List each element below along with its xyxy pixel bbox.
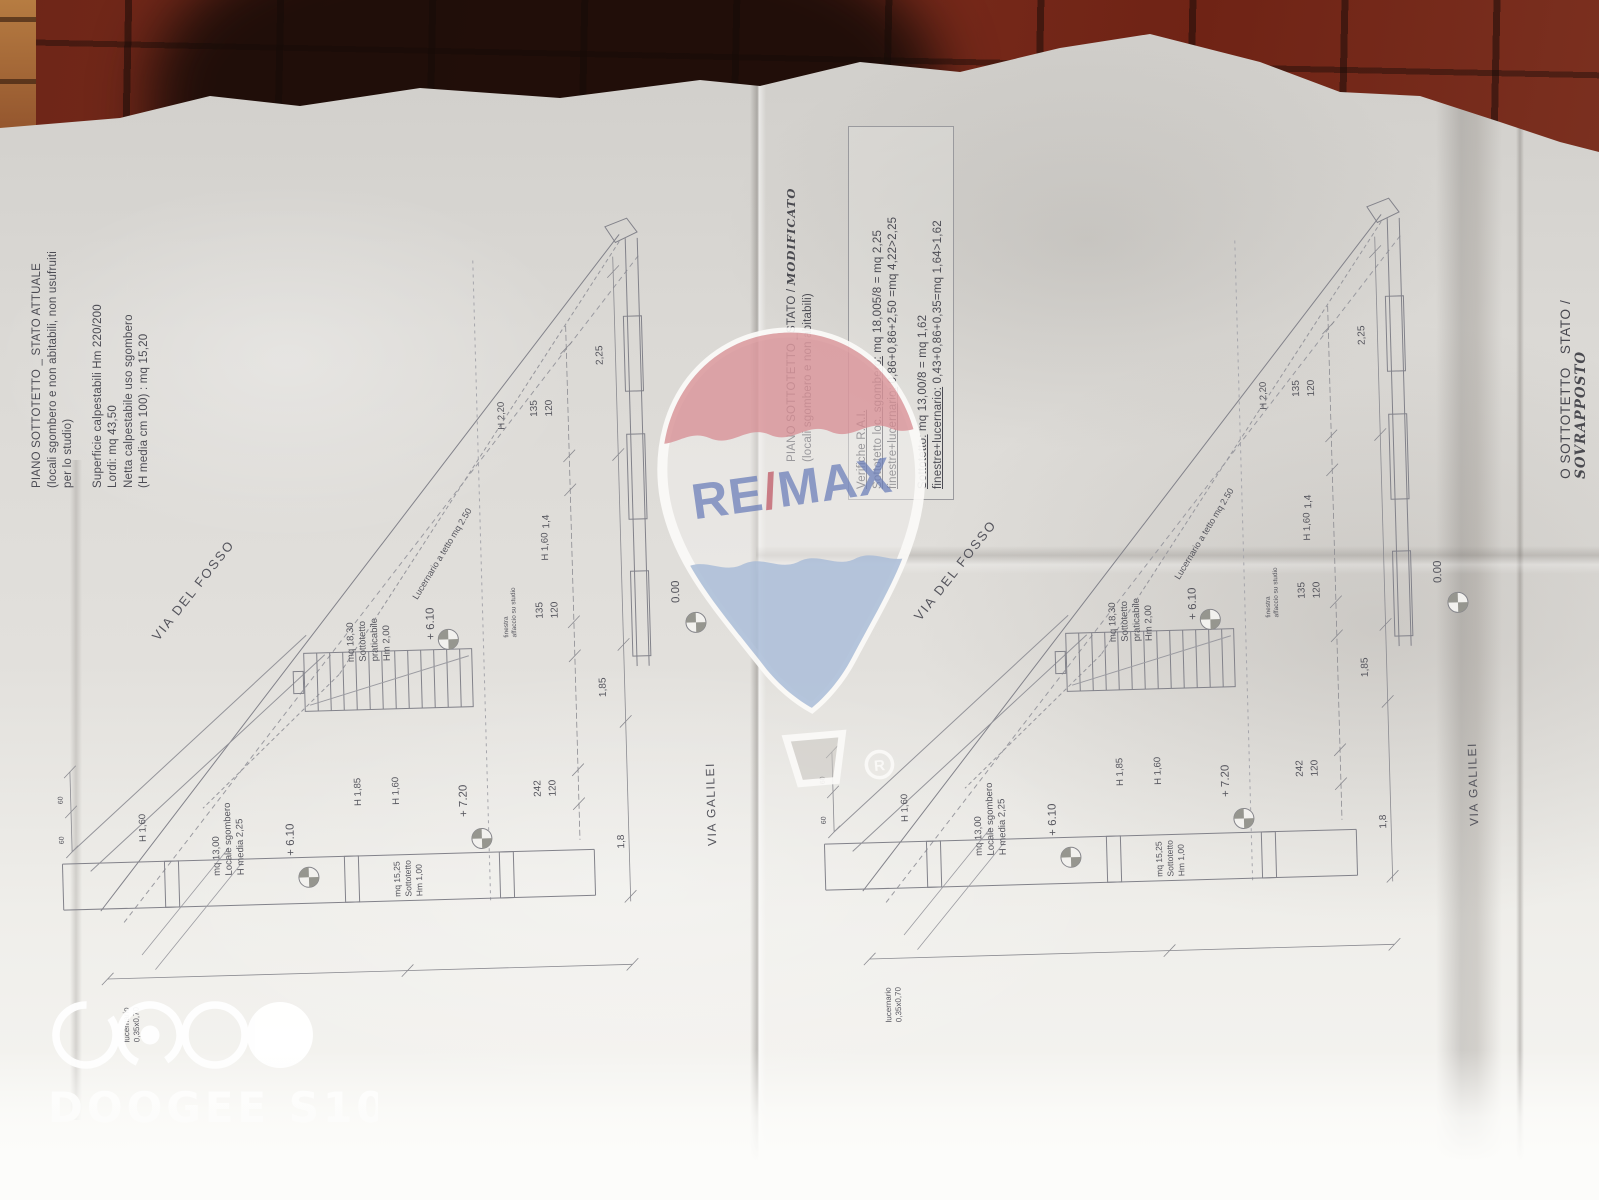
roof-skylight-label: Lucernario a tetto mq 2.50 <box>1172 486 1235 581</box>
svg-text:Sottotetto: Sottotetto <box>402 860 413 897</box>
roof-skylight-label: Lucernario a tetto mq 2.50 <box>410 506 473 601</box>
edge-title-printed: O SOTTOTETTO STATO / <box>1558 300 1573 479</box>
level-zero-label: 0.00 <box>1432 560 1445 583</box>
svg-text:Sottotetto: Sottotetto <box>1164 840 1175 877</box>
window-note-label: finestra affaccio su studio <box>1264 567 1280 618</box>
balloon-basket <box>786 733 846 784</box>
room-label-locale-sgombero: mq 13,00 Locale sgombero H media 2,25 <box>972 782 1009 856</box>
paper-right-fold-line <box>1516 80 1524 1200</box>
dim-135: 135 <box>1296 581 1307 598</box>
level-720-label: + 7.20 <box>457 784 470 817</box>
roof-apex-cap <box>605 218 638 243</box>
svg-text:mq 13,00: mq 13,00 <box>973 816 985 856</box>
level-marker-610-lower <box>1061 847 1082 868</box>
room-label-sottotetto-2: mq 15,25 Sottotetto Hm 1,00 <box>391 859 424 897</box>
svg-text:H media 2,25: H media 2,25 <box>234 819 247 876</box>
level-marker-720 <box>472 828 493 849</box>
dim-120: 120 <box>544 399 555 416</box>
dim-135: 135 <box>529 400 540 417</box>
dim-135: 135 <box>534 601 545 618</box>
dim-185: 1,85 <box>597 677 609 697</box>
room-label-sottotetto-praticabile: mq 18,30 Sottotetto praticabile Hm 2,00 <box>1107 598 1155 643</box>
level-610-label: + 6.10 <box>1186 587 1199 620</box>
room-label-sottotetto-2: mq 15,25 Sottotetto Hm 1,00 <box>1153 839 1186 877</box>
svg-text:H media 2,25: H media 2,25 <box>996 799 1009 856</box>
registered-trademark-icon: R <box>865 750 893 778</box>
dim-60: 60 <box>821 816 828 824</box>
bottom-overexposure <box>0 1050 1599 1200</box>
svg-text:praticabile: praticabile <box>369 618 381 662</box>
svg-text:affaccio su studio: affaccio su studio <box>1272 567 1280 618</box>
dim-60: 60 <box>58 796 65 804</box>
svg-text:Hm 1,00: Hm 1,00 <box>414 864 425 897</box>
dim-120: 120 <box>1311 581 1322 598</box>
plan-base-walls <box>56 627 597 972</box>
level-610-label: + 6.10 <box>424 607 437 640</box>
section-drawing-left: VIA DEL FOSSO VIA GALILEI Lucernario a t… <box>26 193 749 1062</box>
height-h160: H 1,60 <box>539 532 551 560</box>
remax-balloon-watermark: RE/MAX R <box>618 309 980 813</box>
svg-text:affaccio su studio: affaccio su studio <box>510 587 518 638</box>
svg-text:Locale sgombero: Locale sgombero <box>222 803 235 876</box>
section-drawing-svg: VIA DEL FOSSO VIA GALILEI Lucernario a t… <box>26 193 749 1062</box>
skylight-size-label: lucernario 0,35x0,70 <box>883 986 903 1022</box>
dim-18: 1,8 <box>616 834 627 849</box>
handwritten-sovrapposto: SOVRAPPOSTO <box>1573 351 1589 479</box>
svg-text:Hm 1,00: Hm 1,00 <box>1176 844 1187 877</box>
dim-242: 242 <box>1294 760 1305 777</box>
svg-text:finestra: finestra <box>1265 596 1273 618</box>
level-marker-720 <box>1234 808 1255 829</box>
level-marker-610-upper <box>438 629 459 650</box>
svg-text:praticabile: praticabile <box>1131 598 1143 642</box>
svg-text:R: R <box>873 757 885 775</box>
svg-text:mq 13,00: mq 13,00 <box>211 836 223 876</box>
height-h220: H 2,20 <box>1258 382 1270 410</box>
svg-text:mq 18,30: mq 18,30 <box>1107 602 1119 642</box>
dim-120: 120 <box>547 779 558 796</box>
svg-text:lucernario: lucernario <box>883 987 893 1023</box>
svg-text:Sottotetto: Sottotetto <box>357 621 369 662</box>
dim-120: 120 <box>1306 379 1317 396</box>
dim-60: 60 <box>59 836 66 844</box>
dim-18: 1,8 <box>1378 814 1389 829</box>
dim-185: 1,85 <box>1359 657 1371 677</box>
height-h185: H 1,85 <box>1114 758 1126 786</box>
dim-120: 120 <box>549 601 560 618</box>
dim-14: 1,4 <box>1303 494 1314 509</box>
dim-14: 1,4 <box>541 514 552 529</box>
photo-of-attic-floor-plan: PIANO SOTTOTETTO _ STATO ATTUALE (locali… <box>0 0 1599 1200</box>
dimension-chains <box>50 256 639 986</box>
roof-section-lines <box>82 218 658 923</box>
height-h160: H 1,60 <box>390 777 402 805</box>
svg-text:Locale sgombero: Locale sgombero <box>984 783 997 856</box>
dim-120: 120 <box>1309 759 1320 776</box>
level-610-label: + 6.10 <box>284 823 297 856</box>
street-label-via-del-fosso: VIA DEL FOSSO <box>149 537 238 643</box>
dim-242: 242 <box>532 780 543 797</box>
level-610-label: + 6.10 <box>1046 803 1059 836</box>
room-label-locale-sgombero: mq 13,00 Locale sgombero H media 2,25 <box>210 802 247 876</box>
svg-text:finestra: finestra <box>503 616 511 638</box>
height-h220: H 2,20 <box>496 402 508 430</box>
svg-text:mq 15,25: mq 15,25 <box>392 861 403 897</box>
level-720-label: + 7.20 <box>1219 764 1232 797</box>
dim-225: 2,25 <box>1356 325 1368 345</box>
height-h160: H 1,60 <box>1152 757 1164 785</box>
svg-text:Sottotetto: Sottotetto <box>1119 601 1131 642</box>
svg-text:mq 18,30: mq 18,30 <box>345 622 357 662</box>
svg-text:Hm 2,00: Hm 2,00 <box>1143 605 1155 641</box>
dim-225: 2,25 <box>594 345 606 365</box>
street-label-via-galilei: VIA GALILEI <box>1465 742 1481 826</box>
level-marker-610-lower <box>299 867 320 888</box>
window-note-label: finestra affaccio su studio <box>502 587 518 638</box>
level-marker-610-upper <box>1200 609 1221 630</box>
height-h185: H 1,85 <box>352 778 364 806</box>
height-h160: H 1,60 <box>899 794 911 822</box>
level-marker-zero <box>1448 592 1469 613</box>
svg-text:mq 15,25: mq 15,25 <box>1154 841 1165 877</box>
svg-text:Hm 2,00: Hm 2,00 <box>381 625 393 661</box>
height-h160: H 1,60 <box>1301 512 1313 540</box>
room-label-sottotetto-praticabile: mq 18,30 Sottotetto praticabile Hm 2,00 <box>345 618 393 663</box>
roof-apex-cap <box>1367 198 1400 223</box>
svg-text:0,35x0,70: 0,35x0,70 <box>893 986 903 1022</box>
height-h160: H 1,60 <box>137 814 149 842</box>
dim-135: 135 <box>1291 380 1302 397</box>
